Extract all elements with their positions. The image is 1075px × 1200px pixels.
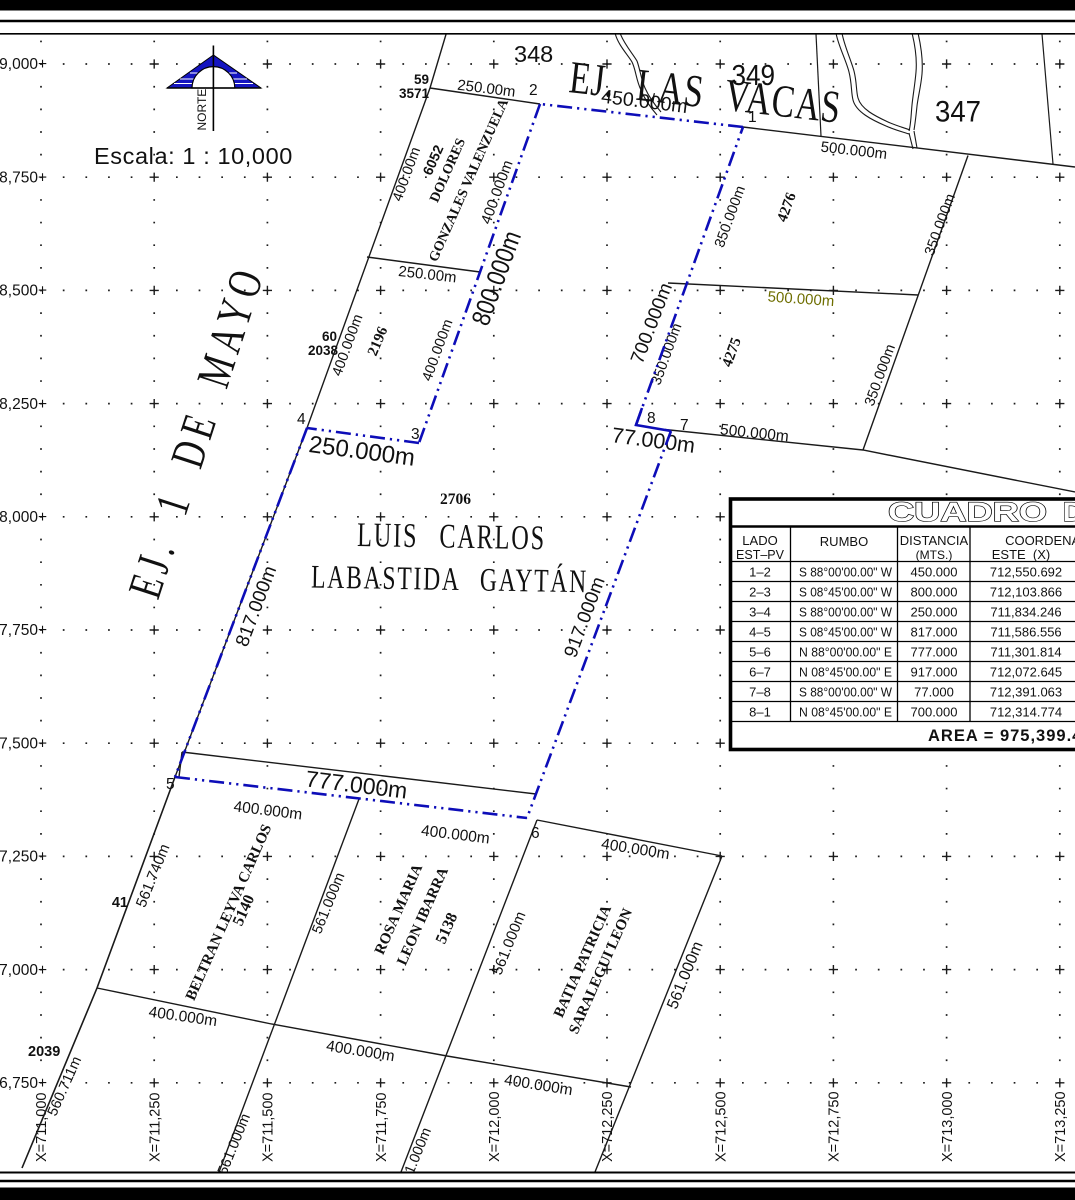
svg-text:60: 60 bbox=[322, 329, 337, 344]
svg-text:7,500+: 7,500+ bbox=[0, 735, 47, 752]
svg-text:5: 5 bbox=[166, 776, 175, 793]
svg-text:3: 3 bbox=[411, 426, 420, 443]
svg-text:349: 349 bbox=[732, 59, 776, 92]
svg-text:Escala: 1 : 10,000: Escala: 1 : 10,000 bbox=[94, 143, 293, 169]
svg-text:ESTE (X): ESTE (X) bbox=[992, 547, 1051, 562]
svg-text:(MTS.): (MTS.) bbox=[916, 548, 953, 562]
svg-text:777.000: 777.000 bbox=[911, 644, 958, 659]
svg-text:347: 347 bbox=[935, 95, 981, 128]
svg-text:X=712,000: X=712,000 bbox=[487, 1091, 503, 1162]
svg-text:2706: 2706 bbox=[440, 491, 471, 508]
svg-text:X=712,750: X=712,750 bbox=[827, 1091, 843, 1162]
svg-text:712,072.645: 712,072.645 bbox=[990, 664, 1062, 679]
svg-text:S 08°45'00.00" W: S 08°45'00.00" W bbox=[799, 624, 893, 639]
svg-text:712,550.692: 712,550.692 bbox=[990, 564, 1062, 579]
svg-text:712,103.866: 712,103.866 bbox=[990, 584, 1062, 599]
svg-text:711,834.246: 711,834.246 bbox=[990, 604, 1061, 619]
svg-text:X=711,500: X=711,500 bbox=[261, 1093, 277, 1162]
svg-text:S 88°00'00.00" W: S 88°00'00.00" W bbox=[799, 604, 893, 619]
svg-text:712,391.063: 712,391.063 bbox=[990, 684, 1062, 699]
svg-text:41: 41 bbox=[112, 895, 128, 911]
svg-text:S 88°00'00.00" W: S 88°00'00.00" W bbox=[799, 684, 893, 699]
svg-text:AREA = 975,399.43: AREA = 975,399.43 bbox=[928, 727, 1075, 745]
svg-text:711,586.556: 711,586.556 bbox=[990, 624, 1061, 639]
svg-text:6: 6 bbox=[531, 825, 540, 842]
svg-text:6–7: 6–7 bbox=[749, 664, 771, 679]
svg-text:712,314.774: 712,314.774 bbox=[990, 704, 1062, 719]
svg-text:3–4: 3–4 bbox=[749, 604, 771, 619]
svg-text:8–1: 8–1 bbox=[749, 704, 771, 719]
svg-text:N 08°45'00.00" E: N 08°45'00.00" E bbox=[799, 664, 892, 679]
svg-text:348: 348 bbox=[514, 41, 553, 67]
svg-text:COORDENADAS: COORDENADAS bbox=[1005, 533, 1075, 548]
svg-text:7–8: 7–8 bbox=[749, 684, 771, 699]
svg-text:S 08°45'00.00" W: S 08°45'00.00" W bbox=[799, 584, 893, 599]
svg-text:N 88°00'00.00" E: N 88°00'00.00" E bbox=[799, 644, 892, 659]
svg-text:250.000: 250.000 bbox=[911, 604, 958, 619]
svg-text:X=712,500: X=712,500 bbox=[713, 1091, 729, 1162]
svg-text:59: 59 bbox=[414, 72, 429, 87]
svg-text:8,750+: 8,750+ bbox=[0, 169, 47, 186]
svg-text:LUIS CARLOS: LUIS CARLOS bbox=[357, 516, 546, 558]
svg-text:1: 1 bbox=[748, 109, 757, 126]
svg-text:X=711,250: X=711,250 bbox=[147, 1093, 163, 1162]
svg-text:4: 4 bbox=[297, 411, 306, 428]
svg-text:CUADRO: CUADRO bbox=[888, 497, 1047, 527]
svg-text:711,301.814: 711,301.814 bbox=[990, 644, 1061, 659]
svg-text:450.000: 450.000 bbox=[911, 564, 958, 579]
svg-text:NORTE: NORTE bbox=[195, 89, 209, 131]
svg-text:7,250+: 7,250+ bbox=[0, 849, 47, 866]
svg-text:4–5: 4–5 bbox=[749, 624, 771, 639]
svg-text:X=713,000: X=713,000 bbox=[940, 1091, 956, 1162]
svg-text:700.000: 700.000 bbox=[911, 704, 958, 719]
svg-text:2039: 2039 bbox=[28, 1044, 60, 1060]
svg-text:2–3: 2–3 bbox=[749, 584, 771, 599]
svg-text:7,750+: 7,750+ bbox=[0, 622, 47, 639]
svg-text:77.000: 77.000 bbox=[914, 684, 954, 699]
svg-text:S 88°00'00.00" W: S 88°00'00.00" W bbox=[799, 564, 893, 579]
svg-text:X=711,750: X=711,750 bbox=[374, 1093, 390, 1162]
svg-text:8,000+: 8,000+ bbox=[0, 509, 47, 526]
svg-text:2038: 2038 bbox=[308, 343, 339, 358]
svg-text:5–6: 5–6 bbox=[749, 644, 771, 659]
svg-text:D: D bbox=[1063, 497, 1075, 527]
svg-text:N 08°45'00.00" E: N 08°45'00.00" E bbox=[799, 704, 892, 719]
svg-text:EST–PV: EST–PV bbox=[736, 548, 785, 562]
svg-text:LADO: LADO bbox=[742, 533, 777, 548]
svg-text:1–2: 1–2 bbox=[749, 564, 771, 579]
svg-text:8: 8 bbox=[647, 410, 656, 427]
svg-text:917.000: 917.000 bbox=[911, 664, 958, 679]
svg-text:3571: 3571 bbox=[399, 86, 430, 101]
svg-text:7,000+: 7,000+ bbox=[0, 962, 47, 979]
svg-text:DISTANCIA: DISTANCIA bbox=[900, 533, 969, 548]
svg-text:817.000: 817.000 bbox=[911, 624, 958, 639]
svg-text:RUMBO: RUMBO bbox=[820, 534, 868, 549]
svg-text:X=713,250: X=713,250 bbox=[1053, 1091, 1069, 1162]
svg-text:9,000+: 9,000+ bbox=[0, 56, 47, 73]
svg-text:2: 2 bbox=[529, 82, 538, 99]
svg-text:800.000: 800.000 bbox=[911, 584, 958, 599]
svg-text:6,750+: 6,750+ bbox=[0, 1075, 47, 1092]
svg-text:8,250+: 8,250+ bbox=[0, 396, 47, 413]
svg-text:LABASTIDA GAYTÁN: LABASTIDA GAYTÁN bbox=[311, 559, 588, 600]
svg-text:8,500+: 8,500+ bbox=[0, 283, 47, 300]
